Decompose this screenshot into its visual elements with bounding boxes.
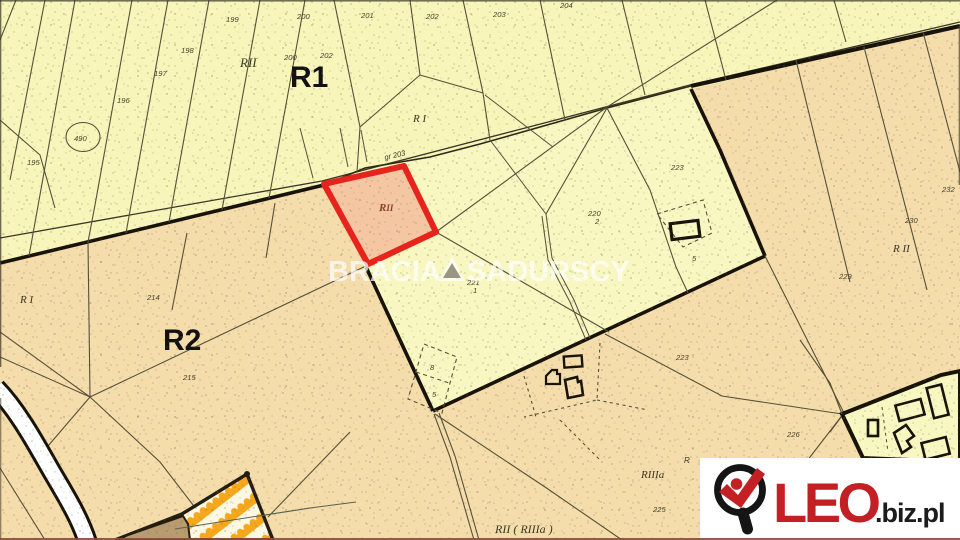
svg-text:BRACIA: BRACIA <box>328 256 441 288</box>
svg-text:LEO: LEO <box>773 471 880 534</box>
svg-text:.biz.pl: .biz.pl <box>875 498 945 528</box>
svg-text:SADURSCY: SADURSCY <box>467 256 630 288</box>
